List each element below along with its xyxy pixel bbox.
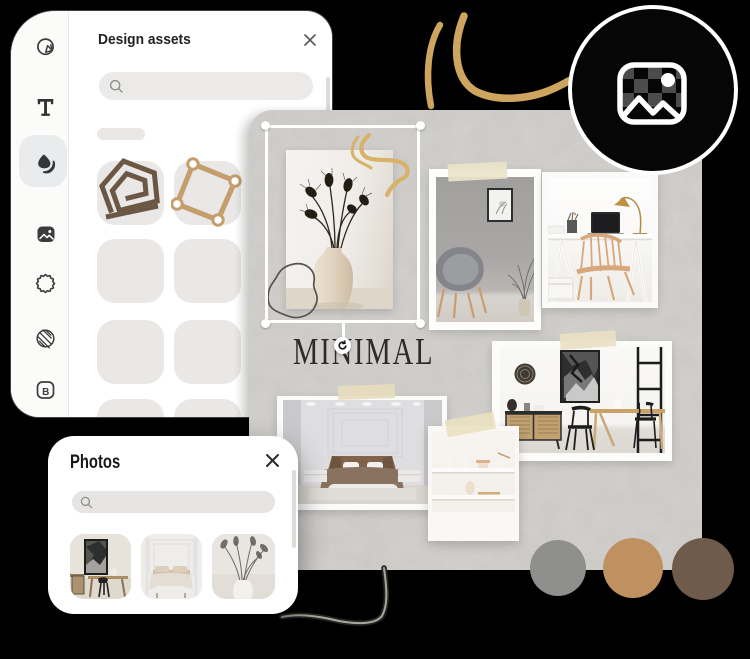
svg-text:B: B xyxy=(42,387,49,398)
